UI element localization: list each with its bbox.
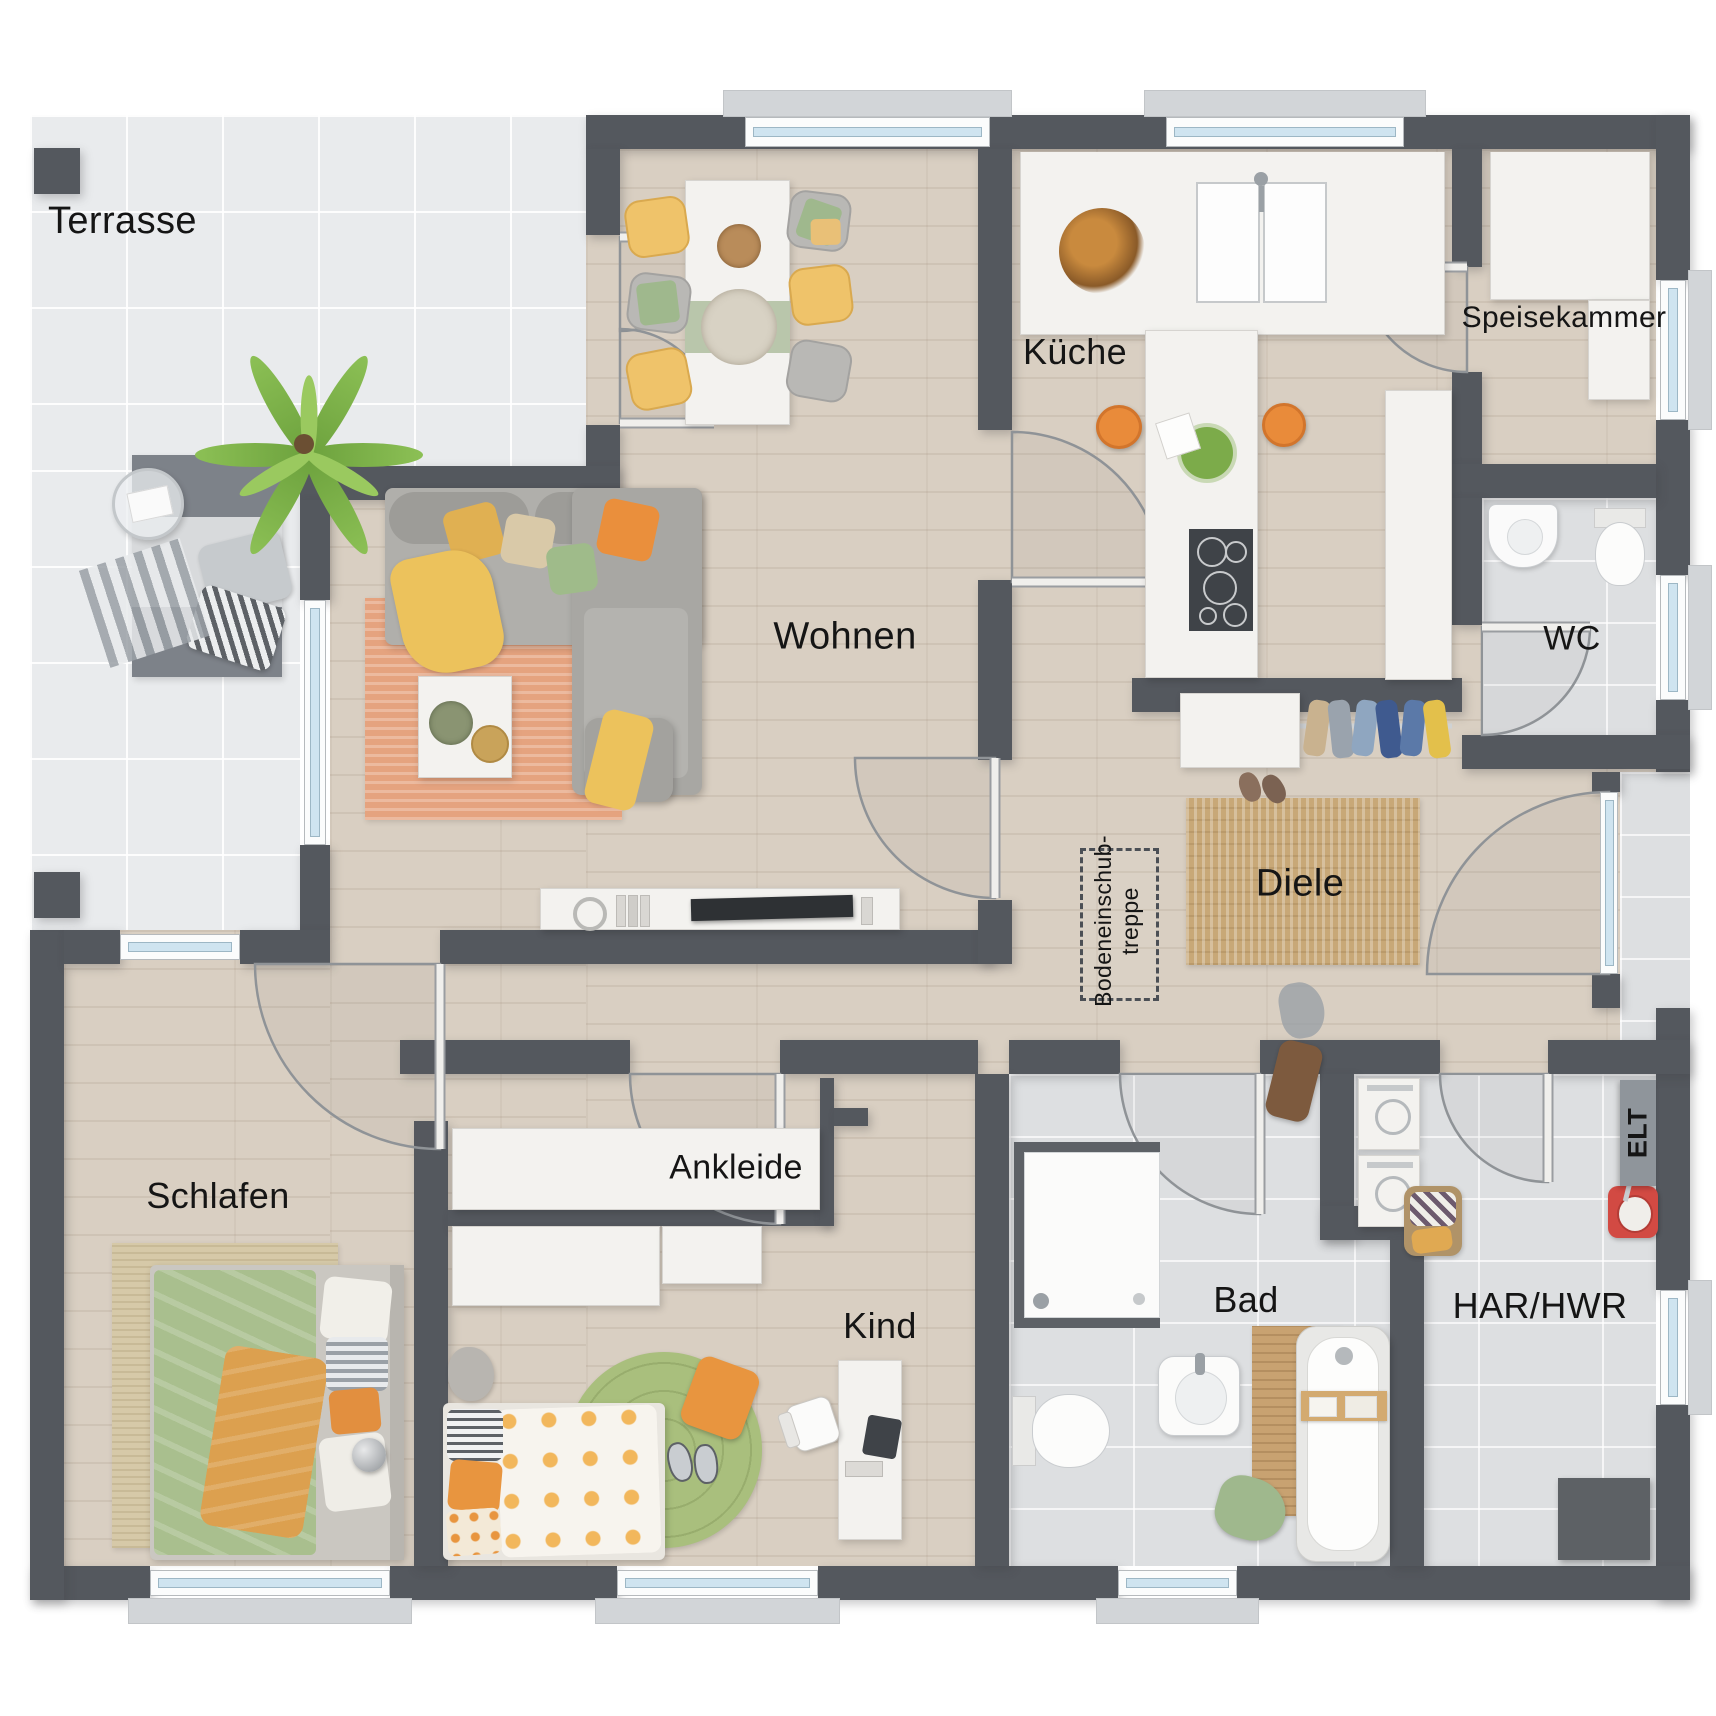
dining-chair: [787, 262, 856, 327]
kids-blanket: [496, 1404, 661, 1557]
dining-chair: [622, 194, 691, 260]
tub-caddy: [1301, 1391, 1387, 1421]
room-label-diele: Diele: [1256, 863, 1345, 906]
toilet: [1012, 1392, 1108, 1468]
floor-plan: Terrasse Küche Speisekammer WC Wohnen Di…: [0, 0, 1716, 1716]
double-bed: [150, 1265, 404, 1560]
room-label-schlafen: Schlafen: [146, 1175, 289, 1217]
label-attic-stairs: Bodeneinschub- treppe: [1090, 835, 1144, 1007]
wc-basin: [1488, 504, 1558, 568]
slippers: [668, 1442, 718, 1482]
bathtub: [1296, 1326, 1390, 1562]
ankleide-wardrobe-bottom: [662, 1226, 762, 1284]
cooktop: [1189, 529, 1253, 631]
hanging-clothes: [1306, 700, 1452, 758]
palm-plant: [238, 378, 368, 508]
room-label-ankleide: Ankleide: [669, 1149, 803, 1188]
room-label-bad: Bad: [1213, 1279, 1278, 1321]
entrance-door: [1600, 792, 1618, 974]
cloud-shelf: [448, 1347, 494, 1401]
dining-chair: [625, 270, 694, 335]
desk-chair: [782, 1392, 840, 1454]
tech-unit: [1558, 1478, 1650, 1560]
room-label-speisekammer: Speisekammer: [1462, 301, 1667, 335]
mop-bucket: [1608, 1186, 1658, 1238]
kitchen-counter: [1020, 152, 1445, 335]
pouf: [585, 718, 673, 802]
room-label-wc: WC: [1543, 620, 1600, 659]
wc-toilet: [1590, 508, 1648, 588]
bed-headboard: [390, 1265, 404, 1560]
sofa-pillow: [545, 542, 599, 596]
tv-sideboard: [540, 888, 900, 930]
room-label-terrasse: Terrasse: [48, 200, 197, 243]
dining-chair: [785, 188, 854, 253]
room-label-kind: Kind: [843, 1305, 917, 1347]
room-label-wohnen: Wohnen: [773, 616, 916, 659]
bed-pillow: [328, 1387, 382, 1435]
room-label-kueche: Küche: [1023, 331, 1127, 373]
kids-bed: [443, 1403, 665, 1560]
attic-label-line1: Bodeneinschub-: [1090, 835, 1116, 1007]
bedside-lamp: [352, 1438, 386, 1472]
attic-label-line2: treppe: [1117, 887, 1143, 955]
kids-pillow: [447, 1409, 503, 1461]
pantry-shelf: [1490, 152, 1650, 300]
coffee-table: [418, 676, 512, 778]
shower: [1014, 1142, 1160, 1328]
kids-pillow: [447, 1459, 503, 1513]
washer: [1358, 1078, 1420, 1150]
bed-pillow: [319, 1276, 393, 1345]
terrace-table: [112, 468, 184, 540]
hall-wardrobe: [1180, 693, 1300, 768]
dining-chair: [783, 337, 854, 405]
ankleide-wardrobe-bottom: [452, 1226, 660, 1306]
kids-pillow: [445, 1507, 502, 1557]
sofa-pillow: [595, 497, 661, 563]
shoes: [1240, 772, 1286, 802]
kids-desk: [838, 1360, 902, 1540]
kitchen-stool: [1096, 405, 1142, 449]
bathroom-sink: [1158, 1356, 1240, 1436]
label-elt: ELT: [1623, 1108, 1654, 1158]
kitchen-island: [1145, 330, 1258, 678]
bed-pillow: [326, 1337, 388, 1391]
laundry-basket: [1404, 1186, 1462, 1256]
room-label-har-hwr: HAR/HWR: [1453, 1285, 1628, 1327]
dining-table: [685, 180, 790, 425]
kitchen-stool: [1262, 403, 1306, 447]
kitchen-tall-cabinet: [1385, 390, 1452, 680]
